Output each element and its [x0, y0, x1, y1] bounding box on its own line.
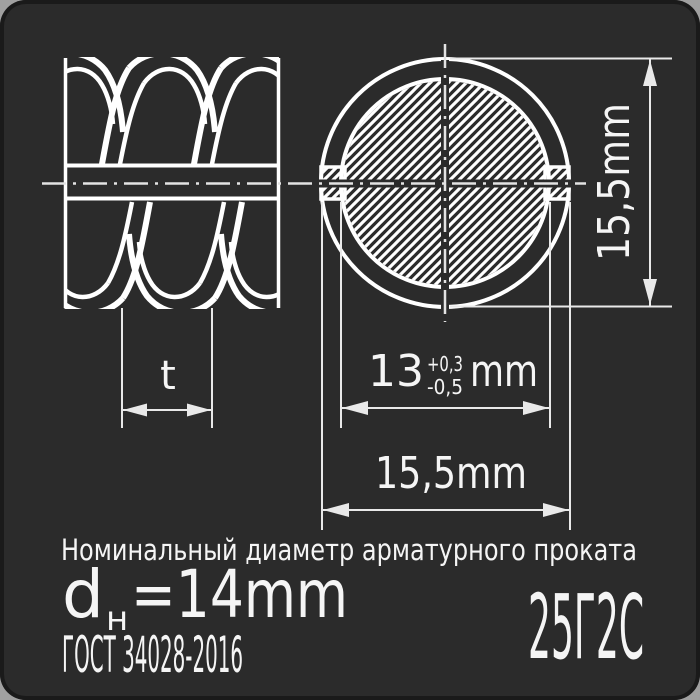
pitch-label: t	[160, 353, 176, 399]
arrowhead-right-icon	[187, 404, 211, 417]
overall-width-value: 15,5mm	[375, 448, 527, 499]
page: t 13 +0,3 -0,5 mm 15,5mm	[0, 0, 700, 700]
arrowhead-left-icon	[123, 404, 147, 417]
rebar-technical-drawing: t 13 +0,3 -0,5 mm 15,5mm	[0, 0, 700, 700]
dimension-pitch: t	[122, 308, 212, 428]
steel-grade: 25Г2С	[528, 575, 644, 679]
diameter-value: =14mm	[131, 556, 348, 633]
core-diameter-value: 13	[368, 346, 424, 397]
core-tolerance-minus: -0,5	[427, 375, 463, 399]
overall-height-value: 15,5mm	[589, 103, 640, 261]
caption: Номинальный диаметр арматурного проката …	[61, 533, 644, 684]
arrowhead-left-icon	[323, 503, 349, 517]
arrowhead-right-icon	[543, 503, 569, 517]
arrowhead-down-icon	[643, 279, 657, 305]
arrowhead-up-icon	[643, 60, 657, 86]
arrowhead-right-icon	[523, 401, 549, 415]
arrowhead-left-icon	[342, 401, 368, 415]
diameter-symbol: d	[62, 556, 104, 633]
drawing-card: t 13 +0,3 -0,5 mm 15,5mm	[0, 0, 700, 700]
standard-number: ГОСТ 34028-2016	[62, 626, 243, 684]
core-tolerance-plus: +0,3	[427, 352, 463, 376]
core-unit: mm	[470, 346, 538, 397]
